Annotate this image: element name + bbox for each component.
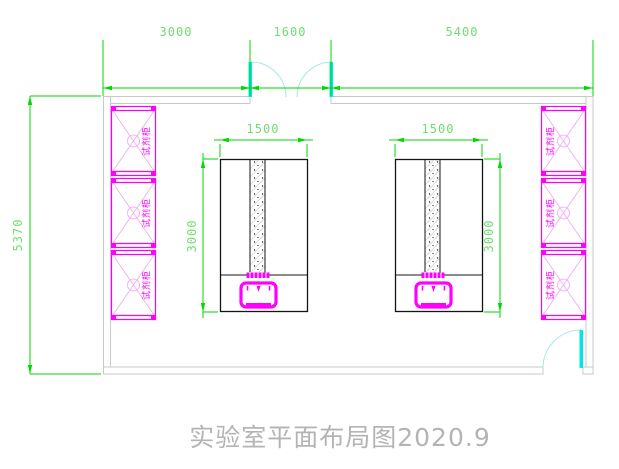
wall-right bbox=[586, 97, 593, 375]
cabinet: 试剂柜 bbox=[541, 250, 586, 320]
lab-bench-right bbox=[395, 159, 483, 312]
cabinet-column-left: 试剂柜 试剂柜 试剂柜 bbox=[111, 106, 156, 320]
cabinet-label: 试剂柜 bbox=[141, 270, 153, 300]
cabinet-label: 试剂柜 bbox=[141, 126, 153, 156]
drawing-title: 实验室平面布局图2020.9 bbox=[189, 423, 490, 452]
cabinet: 试剂柜 bbox=[111, 250, 156, 320]
double-door-top bbox=[249, 62, 334, 97]
cad-floorplan-canvas: 试剂柜 试剂柜 试剂柜 试剂柜 bbox=[0, 0, 619, 469]
dimension-left-height: 5370 bbox=[11, 96, 101, 374]
dimension-bench-right-length: 3000 bbox=[482, 153, 502, 318]
cabinet: 试剂柜 bbox=[111, 178, 156, 248]
wall-top-left bbox=[104, 97, 251, 104]
room-walls bbox=[104, 97, 594, 375]
lab-bench-left bbox=[220, 159, 308, 312]
door-swing-arc bbox=[297, 62, 332, 97]
dim-label-top-right: 5400 bbox=[446, 25, 479, 39]
cabinet-label: 试剂柜 bbox=[141, 198, 153, 228]
door-leaf bbox=[580, 330, 584, 368]
cabinet-column-right: 试剂柜 试剂柜 试剂柜 bbox=[541, 106, 586, 320]
dim-label-bench-right-length: 3000 bbox=[482, 220, 496, 253]
dim-label-bench-left-width: 1500 bbox=[247, 122, 280, 136]
wall-top-right bbox=[331, 97, 593, 104]
cabinet-label: 试剂柜 bbox=[545, 198, 557, 228]
door-swing-arc bbox=[543, 330, 581, 368]
floorplan-drawing: 试剂柜 试剂柜 试剂柜 试剂柜 bbox=[0, 0, 619, 469]
wall-bottom-right bbox=[583, 367, 593, 374]
cabinet-label: 试剂柜 bbox=[545, 270, 557, 300]
cabinet: 试剂柜 bbox=[111, 106, 156, 176]
dimension-top-chain: 3000 1600 5400 bbox=[103, 25, 593, 96]
dim-label-bench-left-length: 3000 bbox=[185, 220, 199, 253]
dim-label-left-height: 5370 bbox=[11, 219, 25, 252]
dim-label-top-left: 3000 bbox=[160, 25, 193, 39]
dim-label-top-middle: 1600 bbox=[274, 25, 307, 39]
door-swing-arc bbox=[251, 62, 286, 97]
wall-bottom-left bbox=[104, 367, 544, 374]
dimension-bench-right-width: 1500 bbox=[389, 122, 488, 157]
wall-left bbox=[104, 97, 111, 375]
dim-label-bench-right-width: 1500 bbox=[422, 122, 455, 136]
cabinet: 试剂柜 bbox=[541, 178, 586, 248]
dimension-bench-left-width: 1500 bbox=[214, 122, 313, 157]
single-door-bottom-right bbox=[543, 330, 583, 368]
dimension-bench-left-length: 3000 bbox=[185, 153, 218, 318]
cabinet-label: 试剂柜 bbox=[545, 126, 557, 156]
bench-center-strip bbox=[250, 160, 265, 275]
bench-center-strip bbox=[425, 160, 440, 275]
cabinet: 试剂柜 bbox=[541, 106, 586, 176]
